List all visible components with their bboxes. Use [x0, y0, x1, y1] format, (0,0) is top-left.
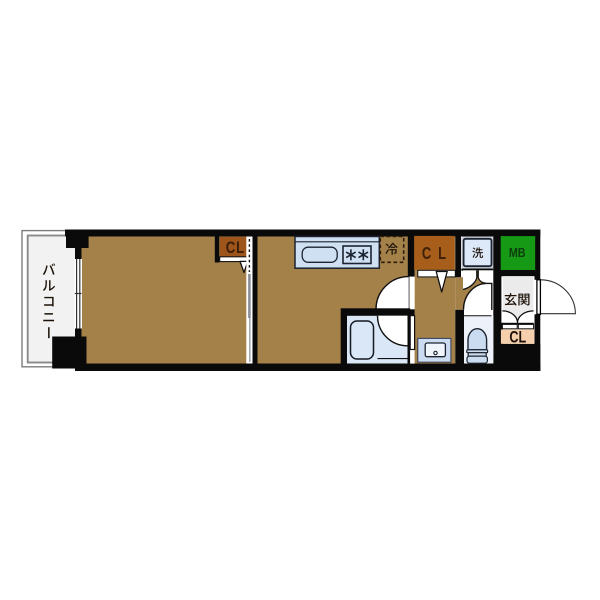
svg-text:CL: CL: [509, 329, 526, 347]
svg-text:CL: CL: [226, 238, 245, 257]
svg-text:C: C: [422, 244, 431, 263]
svg-text:L: L: [438, 244, 446, 263]
svg-text:MB: MB: [509, 246, 526, 260]
